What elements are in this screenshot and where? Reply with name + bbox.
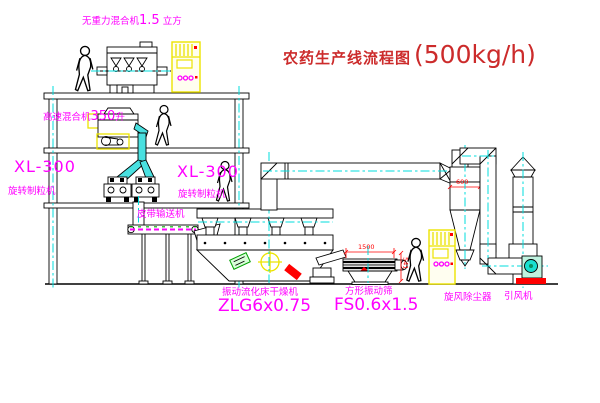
high-speed-mixer-name: 高速混合机	[43, 112, 91, 123]
granulator-left-model: XL-300	[14, 159, 76, 175]
sieve-width-dimension: 1500	[358, 244, 375, 251]
gravity-mixer-spec: 1.5	[139, 13, 160, 28]
page-title: 农药生产线流程图 (500kg/h)	[283, 42, 536, 67]
cyclone-outlet-dimension: 600	[456, 179, 468, 186]
gravity-mixer-machine	[91, 42, 173, 93]
cyclone-label: 旋风除尘器	[444, 293, 492, 303]
dryer-model: ZLG6x0.75	[218, 298, 311, 315]
control-cabinet-2	[429, 230, 455, 284]
sieve-model: FS0.6x1.5	[334, 297, 418, 314]
high-speed-mixer-spec: 350	[91, 109, 116, 124]
person-figure	[156, 106, 172, 146]
draft-fan-label: 引风机	[504, 292, 533, 302]
diagram-canvas: 农药生产线流程图 (500kg/h) 无重力混合机1.5 立方 高速混合机350…	[0, 0, 600, 403]
granulator-left-name: 旋转制粒机	[8, 187, 56, 197]
title-text: 农药生产线流程图	[283, 51, 411, 66]
gravity-mixer-name: 无重力混合机	[82, 16, 139, 27]
belt-conveyor-label: 皮带输送机	[137, 210, 185, 220]
high-speed-mixer-unit: 升	[115, 112, 125, 123]
control-cabinet-1	[172, 42, 200, 92]
square-sieve-machine	[343, 246, 407, 285]
granulator-left-machine	[104, 177, 131, 202]
title-capacity: (500kg/h)	[414, 42, 536, 67]
person-figure	[75, 46, 92, 90]
granulator-right-model: XL-300	[177, 164, 239, 180]
granulator-right-name: 旋转制粒机	[178, 190, 226, 200]
exhaust-duct	[261, 163, 456, 210]
gravity-mixer-label: 无重力混合机1.5 立方	[82, 14, 182, 27]
granulator-right-machine	[132, 177, 159, 202]
high-speed-mixer-label: 高速混合机350升	[43, 110, 125, 123]
sieve-height-dimension: 541	[402, 257, 409, 269]
belt-conveyor-machine	[128, 225, 198, 284]
gravity-mixer-unit: 立方	[163, 16, 182, 27]
